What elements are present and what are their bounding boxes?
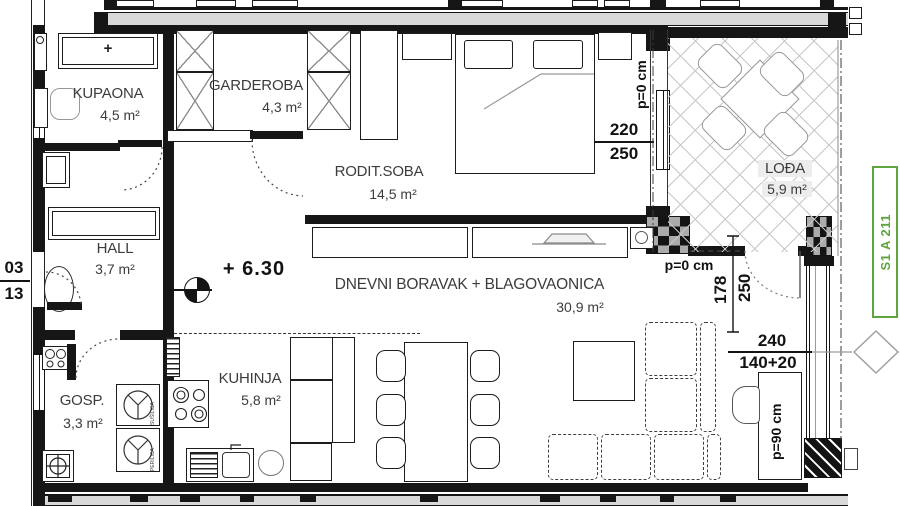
right-wall-junction <box>804 438 842 478</box>
dining-chair <box>470 394 500 426</box>
entry-unit-number: 13 <box>0 284 28 304</box>
upper-unit-fixture <box>196 0 236 7</box>
upper-unit-fixture <box>604 0 630 7</box>
upper-wall-stub <box>104 0 116 7</box>
bedroom-door-leaf <box>250 131 303 139</box>
room-label-gosp: GOSP. <box>50 392 114 409</box>
left-wall <box>33 483 45 506</box>
dining-chair <box>376 394 406 426</box>
dishwasher-circle <box>258 450 284 476</box>
hall-closet-inner <box>52 211 156 236</box>
shower-unit-inner <box>46 156 66 184</box>
upper-unit-fixture <box>700 0 740 7</box>
bath-door-arc <box>121 147 162 190</box>
upper-unit-fixture <box>572 0 598 7</box>
entry-floor-number: 03 <box>0 258 28 278</box>
sofa-cushion <box>645 322 697 376</box>
loggia-door-width: 178 <box>711 264 731 316</box>
lower-wall-stub <box>720 494 736 502</box>
sink-basin <box>222 452 250 478</box>
bedroom-window-dimline <box>594 141 654 143</box>
sideboard <box>312 227 468 258</box>
upper-wall-stub <box>820 0 834 7</box>
bedroom-wardrobe <box>360 30 398 140</box>
living-window-height: 140+20 <box>730 353 806 373</box>
dining-chair <box>470 350 500 382</box>
elevation-value: + 6.30 <box>212 258 296 281</box>
sofa-armrest <box>707 434 721 480</box>
ac-unit-fan <box>635 231 648 244</box>
tv-sideboard <box>472 227 628 258</box>
room-area-dnevni: 30,9 m² <box>548 299 612 315</box>
lower-wall-stub <box>420 494 438 502</box>
lower-wall-stub <box>48 494 72 502</box>
kitchen-base-cabinet <box>290 443 332 481</box>
floor-drain <box>42 450 74 482</box>
bath-cabinet-mark: + <box>59 40 157 57</box>
bath-door-leaf <box>118 140 162 147</box>
pillow <box>533 40 583 69</box>
unit-tag: S1 A 211 <box>872 166 898 318</box>
living-window-mid-line <box>815 266 816 438</box>
sofa-cushion <box>654 434 704 480</box>
kitchen-tall-cabinet <box>166 337 180 377</box>
dryer-label: SUŠILICA <box>150 387 159 425</box>
upper-unit-fixture <box>116 0 154 7</box>
shower-unit <box>42 152 70 188</box>
unit-tag-label: S1 A 211 <box>878 214 893 271</box>
sofa-armrest <box>700 322 716 432</box>
room-area-hall: 3,7 m² <box>75 261 155 277</box>
facade-line-outer <box>31 0 32 506</box>
pillow <box>464 40 513 69</box>
lower-wall-stub <box>240 494 254 502</box>
entry-number-divider <box>0 280 30 282</box>
loggia-top-wall <box>648 27 848 38</box>
living-window-frame <box>826 266 830 438</box>
bedroom-window-height: 250 <box>598 144 650 164</box>
toilet <box>34 88 48 128</box>
lower-wall-stub <box>130 494 148 502</box>
bedroom-parapet: p=0 cm <box>633 52 653 118</box>
bedroom-window-width: 220 <box>598 120 650 140</box>
sofa-cushion <box>601 434 651 480</box>
lower-wall-stub <box>180 494 200 502</box>
lower-wall-stub <box>600 494 616 502</box>
lower-wall-stub <box>540 494 560 502</box>
nightstand <box>598 32 632 60</box>
floor-drain-inner <box>46 454 70 478</box>
gosp-sink <box>42 346 68 370</box>
hall-gosp-wall <box>120 330 163 340</box>
right-wall-corner <box>804 256 834 266</box>
cooktop <box>167 380 209 428</box>
room-label-dnevni: DNEVNI BORAVAK + BLAGOVAONICA <box>322 276 617 294</box>
bath-boiler-knob <box>36 36 44 44</box>
bedroom-living-wall <box>305 215 655 224</box>
gosp-door-leaf <box>67 344 76 380</box>
kitchen-cabinet-column <box>290 380 335 443</box>
upper-unit-fixture <box>455 0 503 7</box>
corridor-band-top <box>95 12 848 26</box>
bath-cabinet: + <box>58 33 158 69</box>
hall-gosp-wall <box>45 330 75 340</box>
room-area-garderoba: 4,3 m² <box>252 99 312 115</box>
bathroom-bottom-wall <box>45 143 120 151</box>
room-area-kuhinja: 5,8 m² <box>230 392 292 408</box>
sink-draining-board <box>190 452 218 478</box>
kitchen-cabinet-column <box>290 337 335 380</box>
room-label-rodit-soba: RODIT.SOBA <box>325 163 433 180</box>
facade-bracket <box>844 448 858 470</box>
dining-table <box>404 342 468 482</box>
bottom-wall <box>45 483 808 492</box>
dining-chair <box>376 437 406 469</box>
room-area-rodit-soba: 14,5 m² <box>358 186 428 202</box>
upper-wall-stub <box>448 0 462 7</box>
entry-door-leaf <box>47 302 82 310</box>
kitchen-cabinet-side <box>332 337 355 443</box>
room-label-kuhinja: KUHINJA <box>205 370 295 387</box>
living-parapet: p=90 cm <box>768 392 788 472</box>
living-window-width: 240 <box>742 331 802 351</box>
dining-chair <box>470 437 500 469</box>
room-label-hall: HALL <box>75 240 155 257</box>
wardrobe-right <box>307 72 351 130</box>
coffee-table <box>573 341 635 401</box>
lower-wall-stub <box>660 494 674 502</box>
sofa-cushion <box>548 434 598 480</box>
sofa-cushion <box>645 378 697 432</box>
facade-diamond-marker <box>854 331 898 373</box>
upper-unit-fixture <box>252 0 298 7</box>
shaft-box <box>849 23 862 35</box>
washer-label: PERILICA <box>150 431 159 471</box>
gosp-door-arc <box>76 339 119 378</box>
bedroom-shelf <box>402 33 452 60</box>
upper-unit-cut-line <box>104 7 848 10</box>
kitchen-boundary-dashed <box>174 333 420 334</box>
hall-closet <box>48 207 160 240</box>
room-area-lodja: 5,9 m² <box>762 181 812 197</box>
wardrobe-right <box>307 30 351 72</box>
shaft-box <box>849 7 862 19</box>
bedroom-door-arc <box>252 140 303 196</box>
room-label-lodja: LOĐA <box>758 160 812 177</box>
desk-chair <box>732 386 760 424</box>
dining-chair <box>376 350 406 382</box>
loggia-door-height: 250 <box>735 258 755 318</box>
lower-wall-stub <box>300 494 316 502</box>
room-label-kupaona: KUPAONA <box>58 85 158 102</box>
upper-wall-stub <box>650 0 666 7</box>
room-label-garderoba: GARDEROBA <box>200 77 312 94</box>
low-partition <box>167 130 253 142</box>
room-area-kupaona: 4,5 m² <box>82 107 158 123</box>
floor-plan: + KUPAONA 4,5 m² HALL 3,7 m² 03 13 SUŠIL… <box>0 0 900 506</box>
wardrobe-left <box>176 30 214 72</box>
room-area-gosp: 3,3 m² <box>52 415 114 431</box>
elevation-underline <box>168 289 212 291</box>
